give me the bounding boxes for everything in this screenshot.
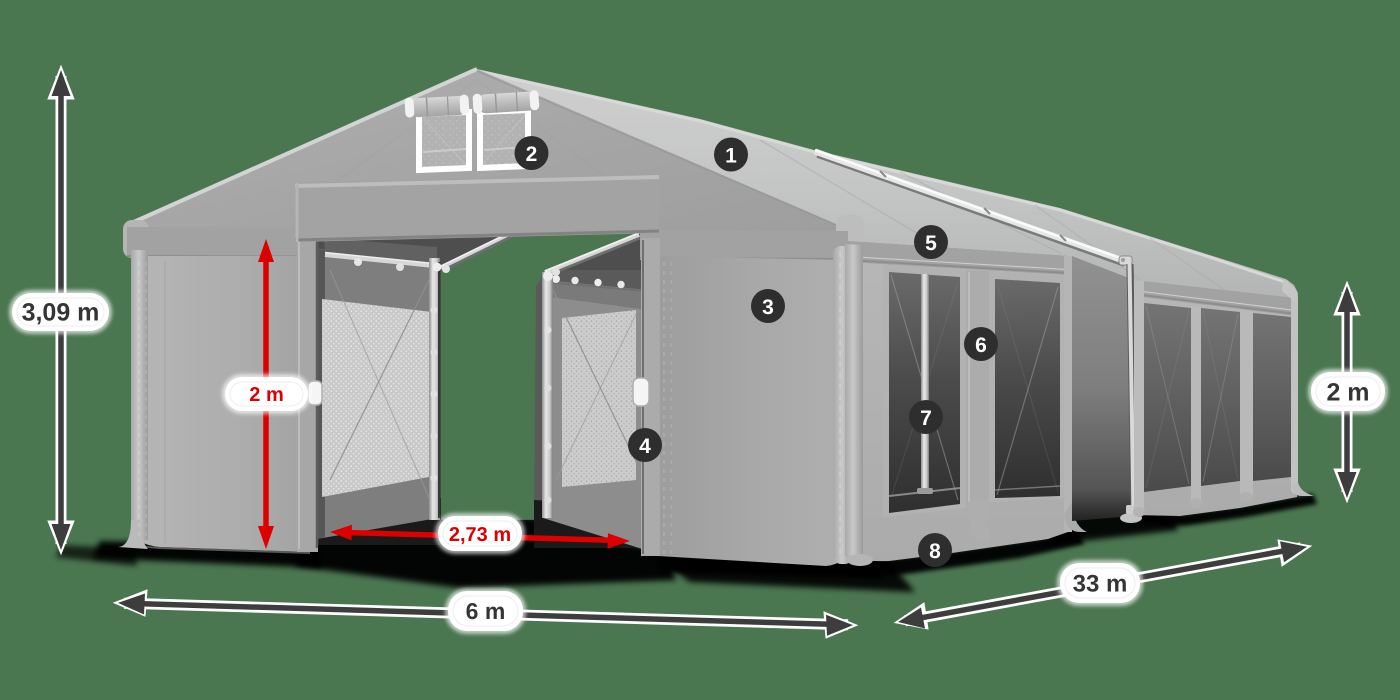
svg-text:5: 5 [925, 232, 937, 255]
svg-text:8: 8 [929, 540, 941, 563]
svg-text:3,09 m: 3,09 m [22, 299, 100, 327]
svg-text:3: 3 [762, 296, 774, 319]
svg-text:4: 4 [639, 435, 651, 458]
svg-text:2,73 m: 2,73 m [449, 524, 511, 546]
svg-text:33 m: 33 m [1073, 571, 1128, 598]
svg-text:2 m: 2 m [1326, 379, 1369, 407]
svg-text:6 m: 6 m [466, 598, 506, 624]
svg-text:2: 2 [526, 143, 538, 166]
svg-text:2 m: 2 m [249, 384, 283, 406]
svg-text:6: 6 [975, 334, 987, 357]
svg-text:7: 7 [920, 407, 932, 430]
svg-text:1: 1 [725, 145, 737, 168]
